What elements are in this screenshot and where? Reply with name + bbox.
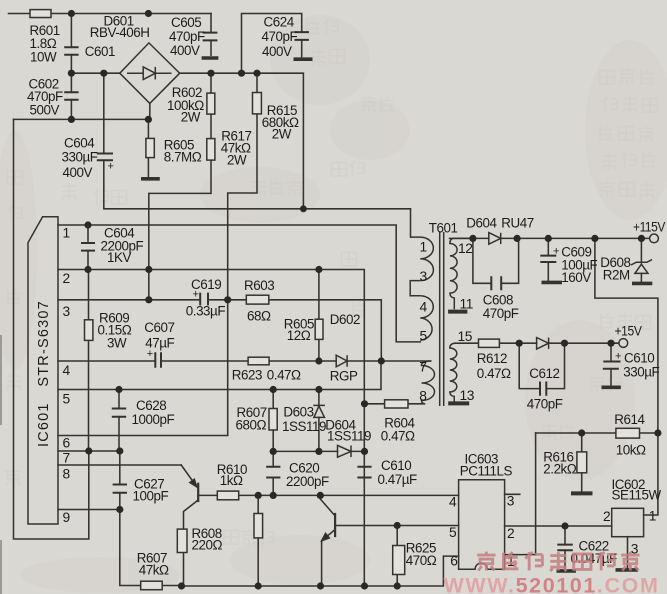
svg-text:2W: 2W [227, 153, 247, 168]
svg-text:D602: D602 [330, 312, 360, 327]
svg-text:1: 1 [649, 509, 656, 524]
svg-text:68Ω: 68Ω [247, 309, 271, 324]
svg-text:500V: 500V [30, 103, 60, 118]
svg-text:RGP: RGP [330, 368, 358, 383]
svg-text:7: 7 [419, 360, 426, 375]
svg-text:9: 9 [63, 510, 71, 525]
svg-text:C605: C605 [171, 15, 201, 30]
svg-text:C607: C607 [144, 320, 174, 335]
svg-text:12: 12 [458, 241, 472, 256]
svg-text:470Ω: 470Ω [406, 553, 437, 568]
svg-text:400V: 400V [63, 165, 93, 180]
svg-text:R603: R603 [244, 278, 274, 293]
svg-text:+: + [147, 348, 153, 360]
svg-text:1: 1 [420, 240, 427, 255]
svg-text:6: 6 [63, 436, 71, 451]
svg-text:2200pF: 2200pF [286, 474, 329, 489]
svg-text:8.7MΩ: 8.7MΩ [164, 150, 202, 165]
svg-text:10kΩ: 10kΩ [616, 442, 646, 457]
svg-text:R614: R614 [614, 412, 645, 427]
svg-text:+15V: +15V [615, 323, 642, 338]
svg-text:R623: R623 [232, 368, 262, 383]
svg-text:0.47Ω: 0.47Ω [267, 368, 301, 383]
svg-text:+: + [193, 289, 199, 301]
svg-text:D603: D603 [283, 405, 313, 420]
svg-text:8: 8 [419, 389, 427, 404]
svg-text:5: 5 [63, 392, 71, 407]
svg-text:PC111LS: PC111LS [460, 464, 513, 479]
svg-text:12Ω: 12Ω [287, 328, 311, 343]
svg-text:C624: C624 [264, 15, 295, 30]
svg-text:11: 11 [460, 297, 473, 312]
svg-text:400V: 400V [170, 43, 200, 58]
svg-text:C610: C610 [381, 458, 411, 473]
svg-text:C628: C628 [136, 398, 166, 413]
svg-text:400V: 400V [262, 44, 292, 59]
svg-text:4: 4 [449, 495, 457, 510]
svg-text:3: 3 [420, 269, 428, 284]
svg-text:470pF: 470pF [483, 306, 519, 321]
svg-text:IC601 STR-S6307: IC601 STR-S6307 [36, 300, 52, 447]
svg-text:100pF: 100pF [133, 489, 169, 504]
svg-text:1SS119: 1SS119 [327, 428, 371, 443]
svg-text:RU47: RU47 [501, 215, 533, 230]
svg-text:1KV: 1KV [107, 250, 131, 265]
svg-text:+: + [108, 161, 114, 173]
svg-text:13: 13 [460, 388, 475, 403]
svg-text:2: 2 [507, 526, 514, 541]
svg-text:R612: R612 [477, 351, 507, 366]
svg-text:2W: 2W [272, 126, 292, 141]
svg-text:160V: 160V [561, 270, 591, 285]
svg-text:1: 1 [63, 226, 70, 241]
svg-text:RBV-406H: RBV-406H [90, 25, 150, 40]
svg-text:470pF: 470pF [527, 397, 563, 412]
svg-text:680Ω: 680Ω [236, 418, 267, 433]
svg-text:0.47Ω: 0.47Ω [477, 366, 511, 381]
svg-text:2: 2 [603, 509, 610, 524]
svg-text:3W: 3W [107, 336, 127, 351]
svg-text:6: 6 [450, 554, 458, 569]
svg-text:1kΩ: 1kΩ [220, 473, 243, 488]
svg-text:330µF: 330µF [623, 365, 659, 380]
svg-text:1SS119: 1SS119 [282, 419, 326, 434]
svg-text:C601: C601 [85, 44, 115, 59]
svg-text:470pF: 470pF [262, 29, 298, 44]
svg-text:0.47Ω: 0.47Ω [381, 429, 415, 444]
svg-text:8: 8 [63, 467, 71, 482]
svg-text:+: + [615, 351, 621, 363]
svg-text:2: 2 [63, 271, 70, 286]
svg-text:5: 5 [420, 329, 428, 344]
svg-text:SE115W: SE115W [612, 488, 662, 503]
svg-text:2.2kΩ: 2.2kΩ [543, 462, 577, 477]
svg-text:15: 15 [458, 329, 473, 344]
svg-text:T601: T601 [429, 220, 458, 235]
svg-text:330µF: 330µF [62, 150, 98, 165]
svg-text:+: + [553, 246, 559, 258]
svg-text:10W: 10W [30, 50, 57, 65]
svg-text:4: 4 [63, 363, 71, 378]
svg-text:1000pF: 1000pF [132, 412, 175, 427]
svg-text:C612: C612 [529, 366, 559, 381]
svg-text:C604: C604 [64, 136, 95, 151]
svg-text:0.33µF: 0.33µF [186, 304, 226, 319]
svg-text:4: 4 [420, 300, 428, 315]
svg-text:220Ω: 220Ω [192, 538, 223, 553]
svg-text:0.47µF: 0.47µF [378, 472, 418, 487]
svg-text:5: 5 [449, 525, 457, 540]
svg-text:2W: 2W [181, 110, 201, 125]
svg-text:3: 3 [63, 304, 71, 319]
svg-text:WWW.520101.COM: WWW.520101.COM [444, 574, 660, 594]
svg-text:470pF: 470pF [169, 29, 205, 44]
svg-text:3: 3 [507, 494, 515, 509]
svg-text:47kΩ: 47kΩ [139, 562, 169, 577]
svg-text:C610: C610 [624, 351, 654, 366]
svg-text:7: 7 [63, 451, 70, 466]
svg-text:D604: D604 [466, 215, 497, 230]
svg-text:+115V: +115V [633, 219, 665, 234]
svg-text:R2M: R2M [603, 268, 630, 283]
